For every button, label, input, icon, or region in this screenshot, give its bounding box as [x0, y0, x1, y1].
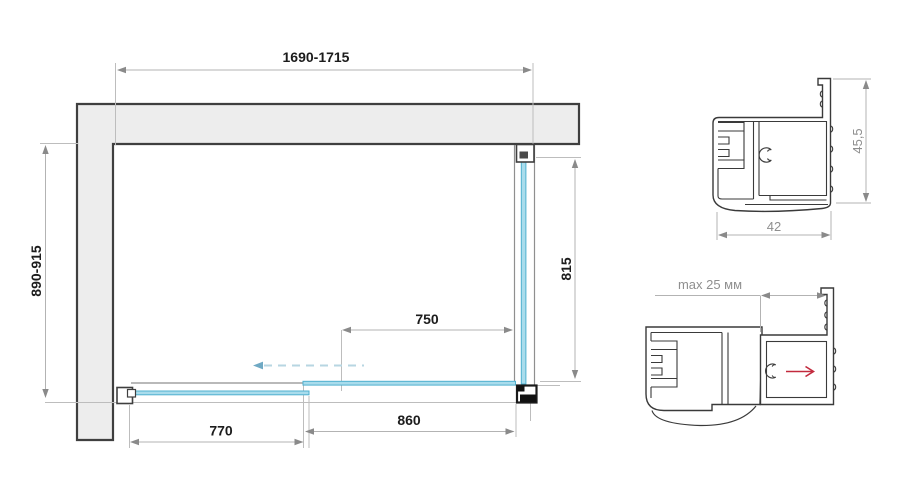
dim-profile-width: 42 — [767, 219, 781, 234]
slide-arrowhead-icon — [253, 362, 263, 370]
dim-profile-height: 45,5 — [850, 128, 865, 153]
profile-bottom-tube — [761, 288, 834, 405]
side-fixed-glass — [521, 150, 526, 384]
wall-section — [77, 104, 579, 440]
technical-drawing-canvas: 1690-1715 890-915 815 750 860 770 — [0, 0, 900, 500]
dim-side-glass: 815 — [558, 257, 574, 281]
dim-width-range: 1690-1715 — [283, 49, 350, 65]
profile-section-top: 45,5 42 — [713, 79, 871, 241]
sliding-door-glass — [303, 381, 516, 385]
profile-top-outline — [713, 79, 831, 212]
profile-section-bottom: max 25 мм — [646, 277, 836, 426]
shower-enclosure-drawing: 1690-1715 890-915 815 750 860 770 — [0, 0, 900, 500]
dim-rear-glass: 770 — [209, 423, 233, 439]
dim-door-glass: 860 — [397, 412, 421, 428]
rear-fixed-glass — [132, 391, 309, 395]
dim-max-adjustment: max 25 мм — [678, 277, 742, 292]
door-slide-arrow — [253, 362, 364, 370]
dim-door-opening: 750 — [415, 311, 439, 327]
dim-depth-range: 890-915 — [28, 245, 44, 297]
profile-bottom-body — [646, 327, 762, 411]
glass-panels — [132, 150, 526, 395]
